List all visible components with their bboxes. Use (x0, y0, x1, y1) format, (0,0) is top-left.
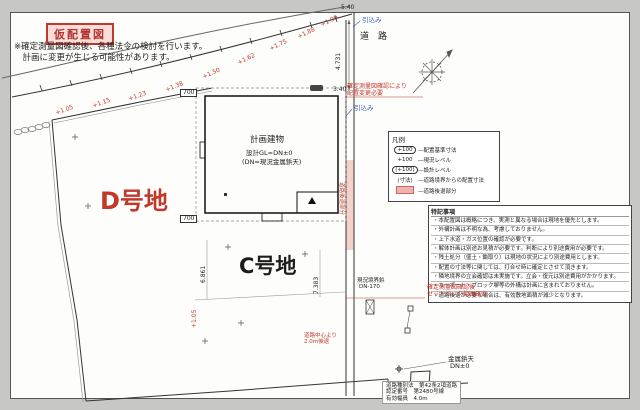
note-row: ・カーポート・ブロック塀等の外構は計画に含まれておりません。 (431, 282, 629, 291)
north-boundary (52, 88, 212, 123)
legend-label: ―現況レベル (418, 156, 496, 164)
legend-rows: +100―配置基準寸法+100―現況レベル(+100)―設計レベル(寸法)―道路… (392, 146, 496, 196)
note-row: ・隣地境界の立会確認は未実施です。立会・復元は別途費用がかかります。 (431, 273, 629, 282)
road-info-box: 道路種別法 第42条2項道路 認定番号 第2480号線 有効幅員 4.0m (382, 381, 461, 404)
legend-label: ―配置基準寸法 (418, 146, 496, 154)
right-road (346, 12, 354, 396)
legend-row: (寸法)―道路境界からの配置寸法 (392, 176, 496, 184)
utility-symbols (366, 300, 413, 333)
legend-box: 凡例 +100―配置基準寸法+100―現況レベル(+100)―設計レベル(寸法)… (388, 131, 500, 202)
note-row: ・上下水道・ガス位置の確認が必要です。 (431, 236, 629, 245)
note-row: ・配置の寸法等に関しては、打合せ時に確定とさせて頂きます。 (431, 264, 629, 273)
legend-symbol: +100 (392, 157, 418, 163)
legend-symbol: (寸法) (392, 176, 418, 184)
header-note-line2: 計画に変更が生じる可能性があります。 (14, 53, 207, 64)
west-boundary (49, 120, 86, 402)
survey-cross-marks (72, 134, 308, 344)
hedge-symbol (14, 123, 50, 135)
setback-strip (347, 160, 354, 250)
notes-box: 特記事項 ・本配置図は概略につき、実測と異なる場合は現地を優先とします。・外構計… (428, 205, 632, 303)
note-row: ・解体計画は別途お見積が必要です。判断により別途費用が必要です。 (431, 245, 629, 254)
road-width: 有効幅員 4.0m (386, 396, 457, 402)
legend-row: +100―現況レベル (392, 156, 496, 164)
entrance-marker (308, 197, 316, 204)
north-arrow-icon (413, 50, 452, 93)
header-note: ※確定測量図確認後、各種法令の検討を行います。 計画に変更が生じる可能性がありま… (14, 42, 207, 63)
note-row: ・本配置図は概略につき、実測と異なる場合は現地を優先とします。 (431, 217, 629, 226)
notes-rows: ・本配置図は概略につき、実測と異なる場合は現地を優先とします。・外構計画は不明な… (431, 217, 629, 300)
legend-symbol: +100 (392, 146, 418, 154)
legend-row: +100―配置基準寸法 (392, 146, 496, 154)
legend-row: ―道路後退部分 (392, 186, 496, 196)
dimension-chain (195, 240, 345, 300)
planned-building (196, 85, 346, 221)
note-row: ・残土処分（盛土・鋤取り）は現地の状況により別途費用とします。 (431, 254, 629, 263)
legend-row: (+100)―設計レベル (392, 166, 496, 174)
notes-title: 特記事項 (431, 207, 629, 217)
equipment-box (310, 85, 323, 91)
legend-label: ―道路後退部分 (418, 187, 496, 195)
legend-label: ―道路境界からの配置寸法 (418, 176, 496, 184)
header-note-line1: ※確定測量図確認後、各種法令の検討を行います。 (14, 42, 207, 53)
note-row: ・道路後退が必要な場合は、有効敷地面積が減少となります。 (431, 292, 629, 300)
legend-title: 凡例 (392, 134, 496, 144)
legend-symbol (392, 186, 418, 196)
legend-label: ―設計レベル (418, 166, 496, 174)
legend-swatch (396, 186, 414, 194)
note-row: ・外構計画は不明な為、考慮しておりません。 (431, 226, 629, 235)
legend-symbol: (+100) (392, 166, 418, 174)
